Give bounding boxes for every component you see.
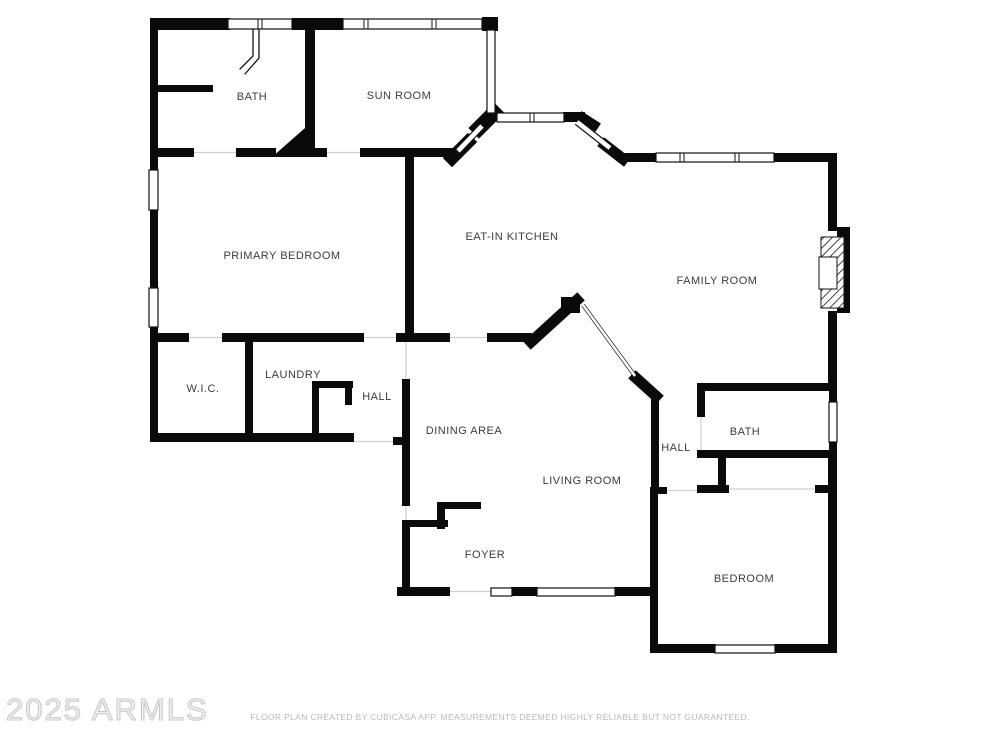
room-label-primary-bedroom: PRIMARY BEDROOM — [223, 250, 340, 262]
window — [149, 288, 158, 327]
floor-plan-page: BATHSUN ROOMPRIMARY BEDROOMEAT-IN KITCHE… — [0, 0, 1000, 750]
wall — [482, 17, 498, 31]
footer-disclaimer: FLOOR PLAN CREATED BY CUBICASA APP. MEAS… — [0, 712, 1000, 722]
room-label-family-room: FAMILY ROOM — [677, 275, 758, 287]
wall — [157, 85, 213, 92]
wall — [828, 450, 837, 653]
wall — [653, 644, 716, 653]
floor-plan-svg: BATHSUN ROOMPRIMARY BEDROOMEAT-IN KITCHE… — [0, 0, 1000, 750]
room-label-sun-room: SUN ROOM — [367, 90, 432, 102]
wall — [393, 437, 403, 445]
wall — [402, 379, 410, 506]
room-label-laundry: LAUNDRY — [265, 369, 321, 381]
wall — [236, 148, 276, 157]
window — [656, 153, 774, 162]
wall — [150, 18, 230, 30]
wall — [245, 337, 253, 439]
wall — [405, 155, 414, 342]
wall — [404, 520, 448, 527]
shower-door-icon — [240, 30, 253, 69]
room-label-eat-in-kitchen: EAT-IN KITCHEN — [466, 231, 559, 243]
wall — [345, 381, 352, 405]
watermark-text: 2025 ARMLS — [6, 692, 209, 728]
wall — [774, 644, 837, 653]
wall — [697, 383, 837, 391]
opening-diagonal-inner — [583, 305, 635, 376]
room-label-dining-area: DINING AREA — [426, 425, 503, 437]
wall — [150, 433, 354, 442]
wall — [410, 333, 450, 342]
wall — [511, 587, 538, 596]
wall — [697, 450, 831, 458]
wall — [829, 383, 837, 403]
wall — [828, 153, 837, 231]
window — [491, 588, 512, 596]
window — [228, 19, 292, 29]
room-label-bath-2: BATH — [730, 426, 761, 438]
wall — [150, 210, 158, 288]
window — [537, 588, 615, 596]
wall — [650, 487, 658, 653]
shower-door-icon — [245, 30, 259, 74]
wall — [312, 381, 319, 440]
window — [829, 402, 837, 442]
room-label-bath-1: BATH — [237, 91, 268, 103]
room-label-hall-2: HALL — [661, 442, 691, 454]
wall — [402, 520, 410, 596]
wall — [774, 153, 837, 162]
wall — [614, 587, 658, 596]
fireplace-firebox — [819, 257, 837, 289]
room-label-bedroom: BEDROOM — [714, 573, 774, 585]
wall — [397, 587, 450, 596]
wall — [150, 18, 158, 170]
wall — [222, 333, 364, 342]
wall — [828, 311, 837, 385]
room-label-foyer: FOYER — [465, 549, 505, 561]
wall — [150, 327, 158, 442]
wall — [651, 391, 659, 491]
wall-diagonal — [531, 300, 577, 342]
wall — [316, 18, 343, 30]
wall — [396, 333, 411, 342]
wall — [150, 333, 189, 342]
room-label-hall-1: HALL — [362, 391, 392, 403]
window — [487, 30, 495, 113]
room-label-living-room: LIVING ROOM — [543, 475, 622, 487]
window — [715, 645, 775, 653]
wall-diagonal — [636, 378, 656, 396]
wall — [150, 148, 194, 157]
wall — [697, 383, 705, 417]
window — [149, 170, 158, 210]
room-label-wic: W.I.C. — [187, 383, 220, 395]
wall — [815, 485, 837, 493]
door-swing — [272, 121, 313, 157]
